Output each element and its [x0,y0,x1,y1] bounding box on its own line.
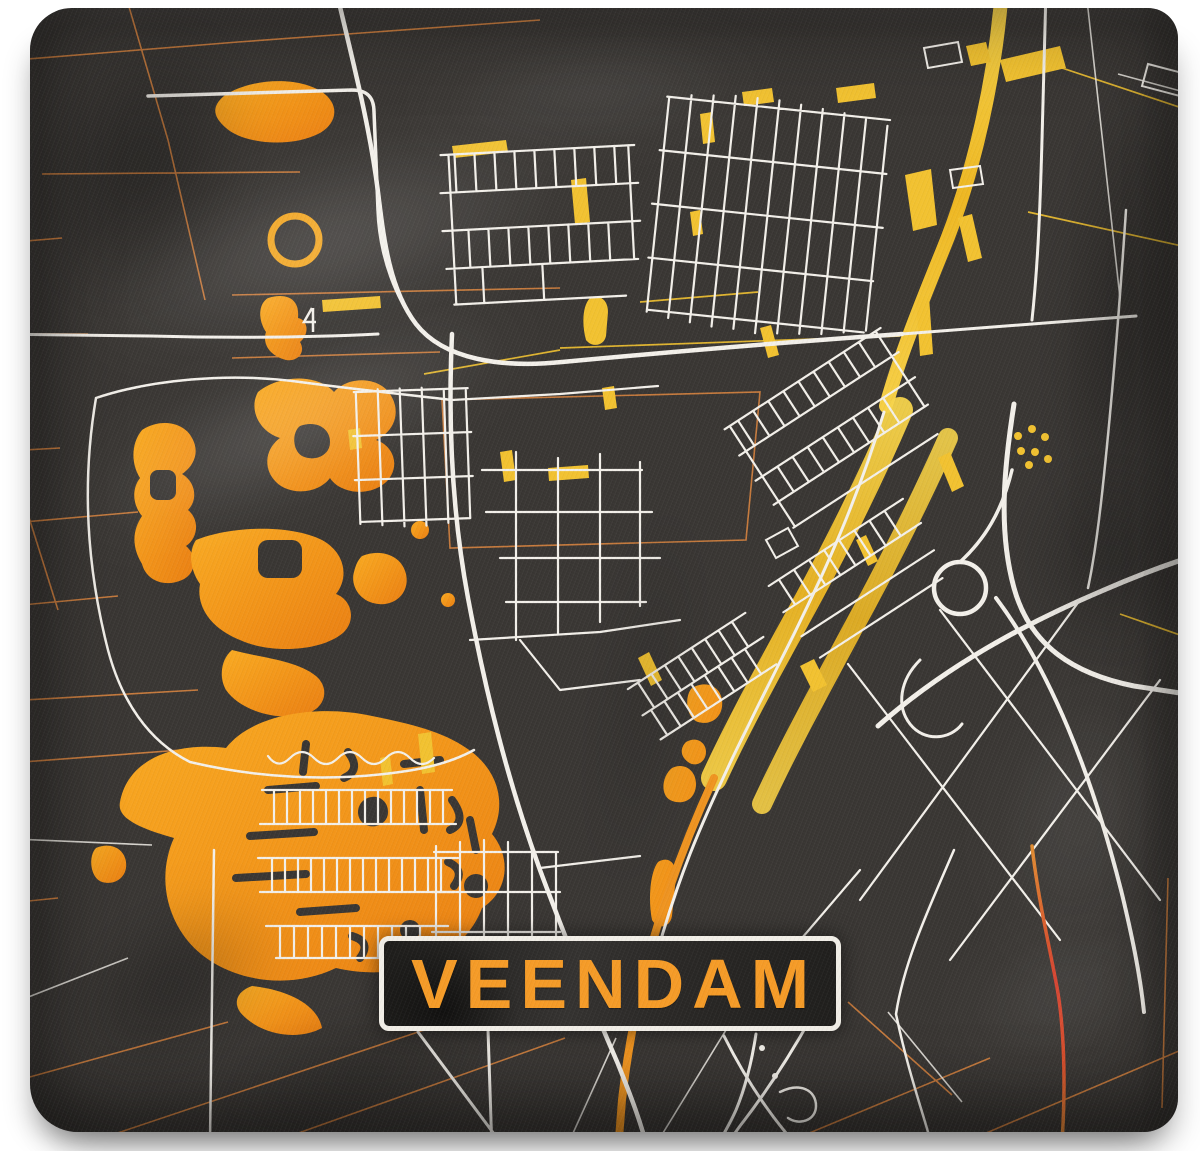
map-title: VEENDAM [411,949,817,1019]
product-photo: VEENDAM [0,0,1200,1151]
map-title-plate: VEENDAM [379,936,841,1031]
pillow-cover: VEENDAM [30,8,1178,1132]
red-gradient-road [1032,846,1064,1132]
map-symbols [304,42,1178,558]
